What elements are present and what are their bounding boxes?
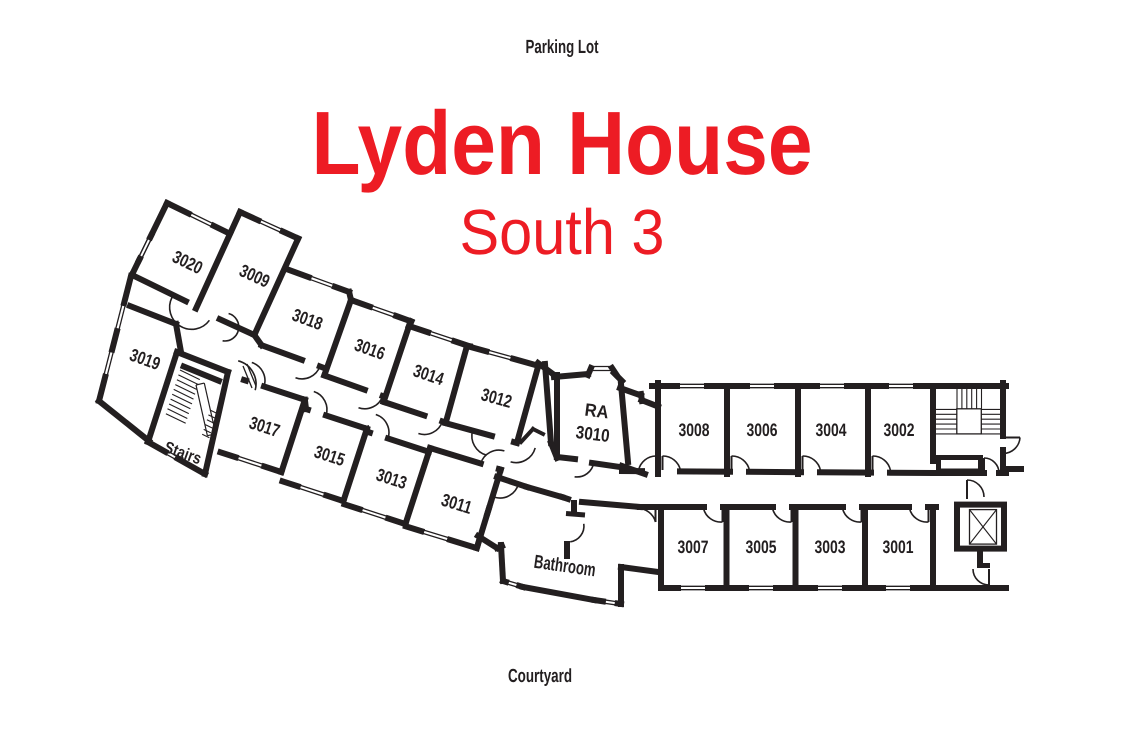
svg-text:3009: 3009 [236,261,273,292]
svg-text:3008: 3008 [679,420,710,440]
svg-text:3018: 3018 [289,305,325,334]
svg-text:3012: 3012 [479,384,514,412]
svg-text:3013: 3013 [374,465,410,494]
svg-text:3002: 3002 [884,420,915,440]
svg-text:3004: 3004 [816,420,847,440]
svg-text:3005: 3005 [746,537,777,557]
svg-text:3014: 3014 [411,360,447,389]
svg-text:3016: 3016 [352,335,388,364]
svg-text:Lyden House: Lyden House [312,94,813,194]
svg-text:3015: 3015 [312,442,348,471]
svg-text:3019: 3019 [127,345,163,374]
svg-text:Courtyard: Courtyard [508,666,572,687]
svg-text:Bathroom: Bathroom [533,552,597,581]
svg-text:3010: 3010 [575,422,611,446]
svg-text:3003: 3003 [815,537,846,557]
svg-text:3011: 3011 [439,490,474,518]
svg-text:RA: RA [584,400,610,423]
svg-text:Parking Lot: Parking Lot [526,37,599,58]
svg-text:3001: 3001 [883,537,914,557]
svg-text:3017: 3017 [247,413,283,442]
svg-text:3007: 3007 [678,537,709,557]
svg-text:3006: 3006 [747,420,778,440]
svg-text:South 3: South 3 [460,196,665,268]
svg-text:3020: 3020 [169,247,206,279]
